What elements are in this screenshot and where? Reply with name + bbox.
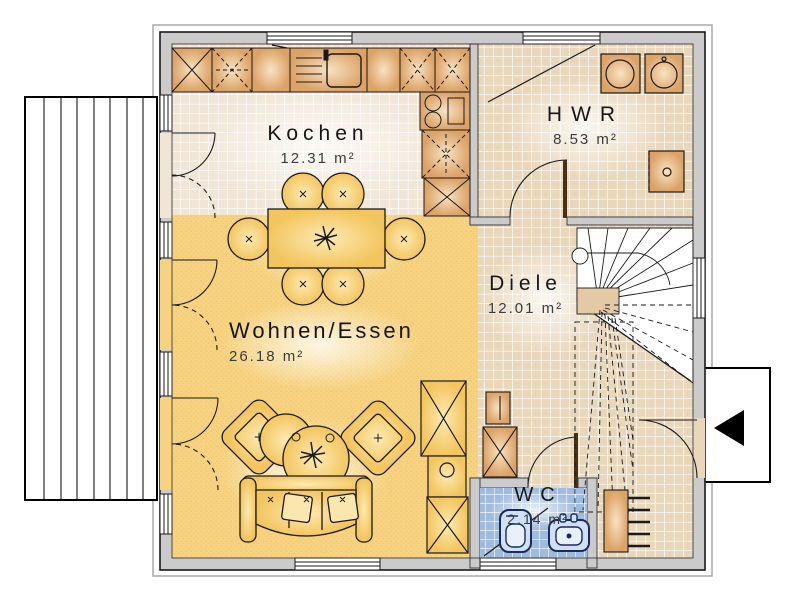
kitchen-stove: [420, 92, 470, 130]
living-cabinets: [421, 381, 468, 553]
entrance-platform: [703, 368, 770, 482]
window-wohnen-bottom: [295, 558, 380, 570]
kitchen-sink: [290, 48, 367, 92]
sink: [549, 514, 589, 551]
washing-machine: [601, 54, 640, 93]
floor-plan-drawing: [0, 0, 800, 606]
floor-plan-page: Kochen 12.31 m² HWR 8.53 m² Diele 12.01 …: [0, 0, 800, 606]
freezer: [649, 151, 684, 192]
window-diele-right: [693, 258, 705, 318]
terrace-deck: [25, 97, 157, 500]
dryer: [645, 54, 683, 93]
toilet: [500, 510, 531, 552]
